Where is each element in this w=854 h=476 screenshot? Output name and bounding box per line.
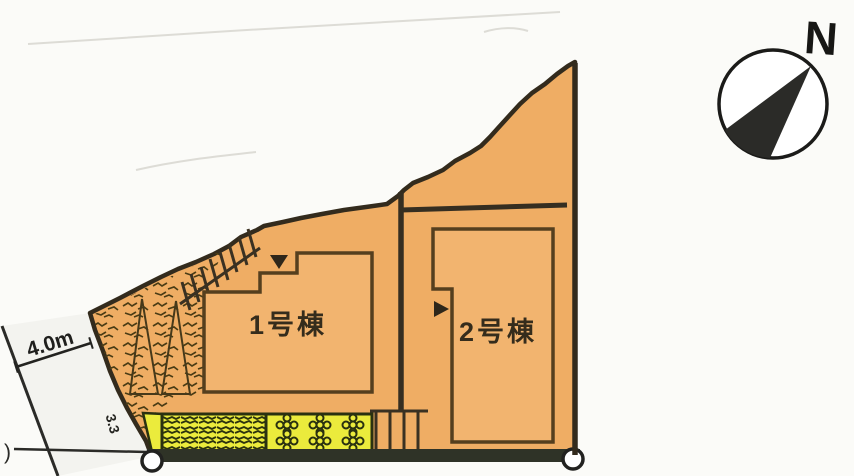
truncated-road-label: ) [4,441,11,464]
planting-strip [143,413,372,452]
building-2: 2号棟 [433,229,553,442]
building-1-label: 1号棟 [249,310,327,340]
south-road-band [147,449,580,462]
building-2-label: 2号棟 [459,317,537,347]
site-plan-drawing: ) 4.0m 3.3 [0,0,854,476]
boundary-marker-left [142,451,162,471]
ground-cover-texture [162,414,266,452]
north-label: N [803,11,840,65]
flower-symbols [277,415,364,452]
